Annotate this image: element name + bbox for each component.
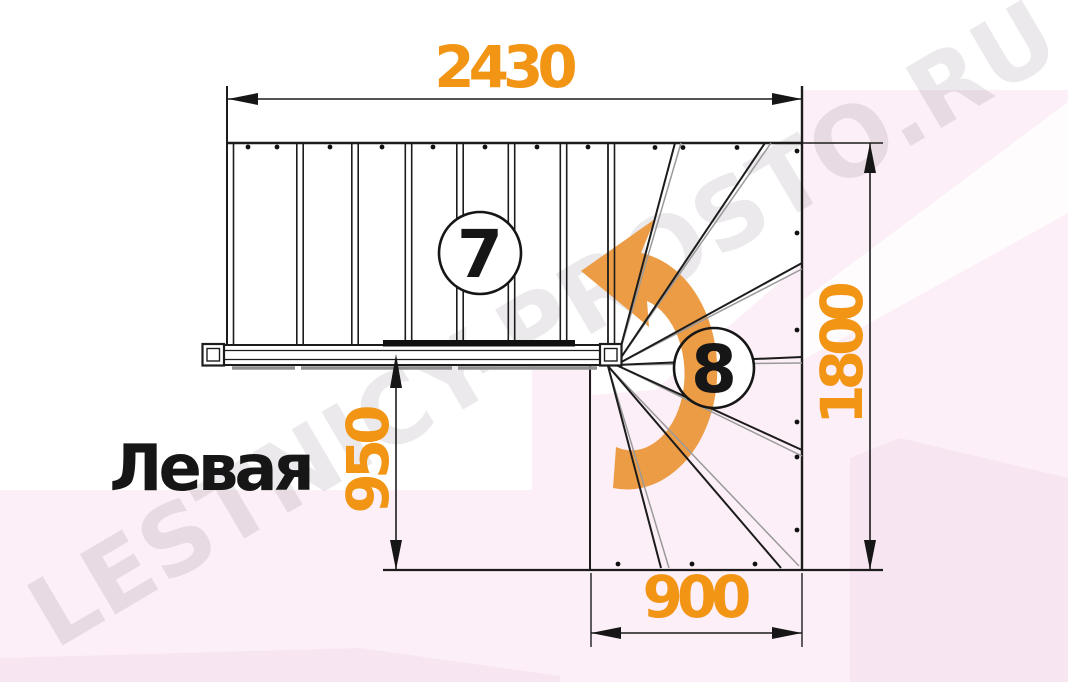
- staircase-plan-drawing: LESTNICY-PROSTO.RU: [0, 0, 1068, 682]
- dimension-right-label: 1800: [808, 284, 876, 425]
- straight-steps-count: 7: [457, 216, 503, 293]
- opening-edge-bar: [383, 340, 575, 347]
- dimension-bottom-label: 900: [642, 563, 749, 631]
- orientation-label: Левая: [109, 432, 310, 506]
- background-mid-strip: [532, 348, 592, 682]
- staircase-plan-page: LESTNICY-PROSTO.RU: [0, 0, 1068, 682]
- handrail-strip: [224, 340, 601, 368]
- winder-steps-count: 8: [691, 331, 737, 408]
- background-deep-right: [850, 438, 1068, 682]
- handrail-rail: [224, 345, 601, 365]
- dimension-top-label: 2430: [434, 33, 575, 101]
- dimension-left-label: 950: [334, 407, 402, 514]
